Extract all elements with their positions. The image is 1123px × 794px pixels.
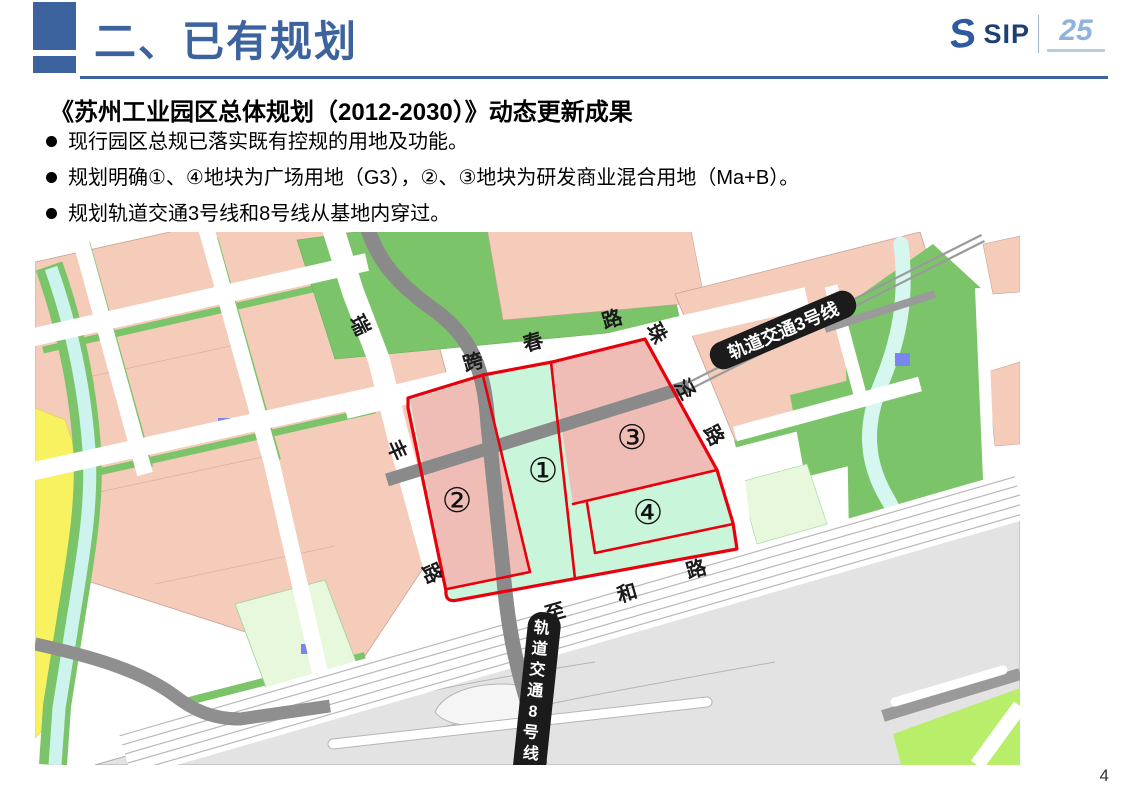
header-accent-square [33, 2, 76, 50]
sip-logo: S SIP 25 [949, 14, 1105, 54]
parcel-label-3: ③ [617, 419, 647, 457]
bullet-item: 规划轨道交通3号线和8号线从基地内穿过。 [46, 202, 1076, 227]
bullet-item: 现行园区总规已落实既有控规的用地及功能。 [46, 130, 1076, 155]
logo-divider [1038, 15, 1039, 53]
bullet-icon [46, 172, 57, 183]
bullet-icon [46, 208, 57, 219]
slide-title: 二、已有规划 [94, 8, 358, 69]
bullet-list: 现行园区总规已落实既有控规的用地及功能。 规划明确①、④地块为广场用地（G3），… [46, 130, 1076, 238]
sip-logo-text: SIP [983, 19, 1030, 50]
line8-char: 交 [528, 659, 546, 680]
parcel-label-1: ① [528, 452, 558, 490]
bullet-item: 规划明确①、④地块为广场用地（G3），②、③地块为研发商业混合用地（Ma+B）。 [46, 166, 1076, 191]
street [981, 288, 989, 480]
line8-char: 轨 [533, 617, 551, 638]
bullet-icon [46, 136, 57, 147]
page-number: 4 [1100, 766, 1109, 786]
parcel-label-2: ② [442, 482, 472, 520]
parcel-label-4: ④ [633, 494, 663, 532]
line8-char: 通 [526, 681, 544, 701]
header-accent-strip [33, 56, 76, 73]
line8-char: 线 [522, 743, 540, 764]
sip-swoosh-icon: S [946, 12, 978, 55]
facility-blue-square [895, 353, 910, 366]
anniversary-number: 25 [1059, 16, 1092, 46]
bullet-text: 现行园区总规已落实既有控规的用地及功能。 [68, 130, 468, 155]
line8-char: 道 [531, 638, 549, 659]
anniversary-logo: 25 [1047, 16, 1105, 52]
line8-char: 号 [522, 723, 540, 743]
line8-char: 8 [528, 703, 539, 721]
header-divider [80, 76, 1108, 79]
section-subtitle: 《苏州工业园区总体规划（2012-2030）》动态更新成果 [50, 92, 633, 127]
planning-map: ① ② ③ ④ 跨 春 路 瑞 丰 路 珠 泾 路 至 和 路 轨道交通3号线 … [35, 232, 1020, 765]
anniversary-tagline-bar [1047, 49, 1105, 52]
planning-map-svg: ① ② ③ ④ 跨 春 路 瑞 丰 路 珠 泾 路 至 和 路 轨道交通3号线 … [35, 232, 1020, 765]
bullet-text: 规划轨道交通3号线和8号线从基地内穿过。 [68, 202, 450, 227]
bullet-text: 规划明确①、④地块为广场用地（G3），②、③地块为研发商业混合用地（Ma+B）。 [68, 166, 799, 191]
